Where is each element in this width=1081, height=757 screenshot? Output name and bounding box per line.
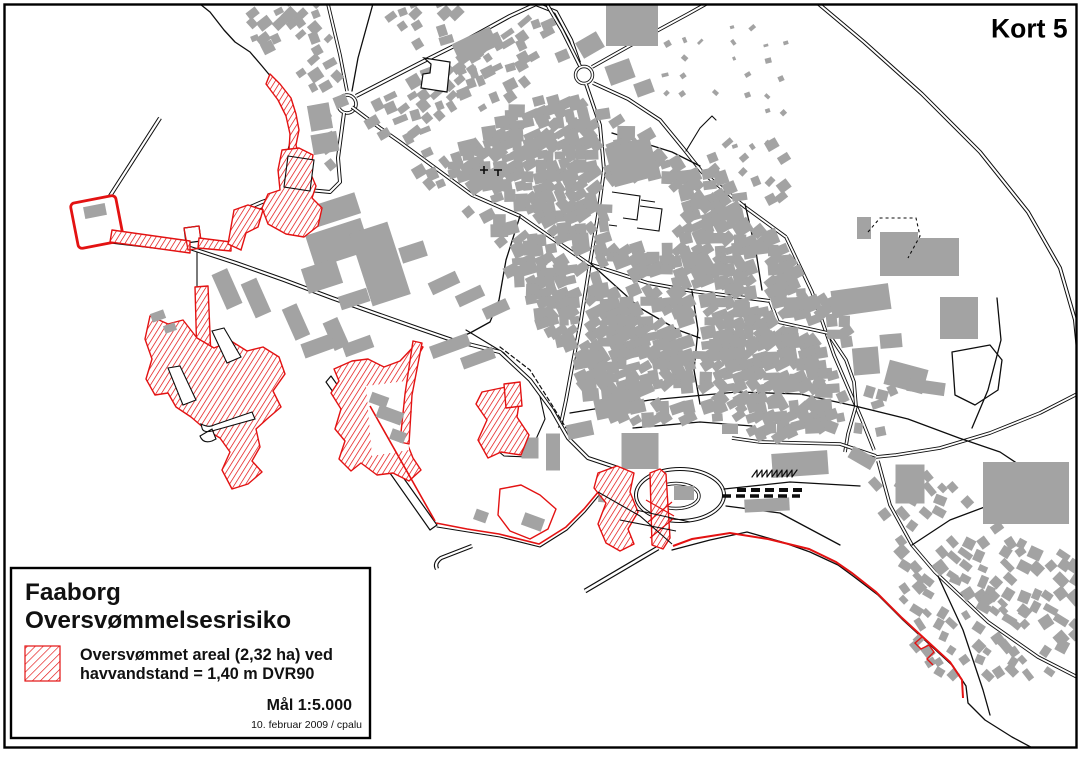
svg-text:Oversvømmelsesrisiko: Oversvømmelsesrisiko bbox=[25, 607, 291, 634]
svg-text:10. februar 2009 / cpalu: 10. februar 2009 / cpalu bbox=[251, 719, 362, 731]
svg-text:havvandstand = 1,40 m DVR90: havvandstand = 1,40 m DVR90 bbox=[80, 665, 314, 683]
svg-text:Oversvømmet areal (2,32 ha) ve: Oversvømmet areal (2,32 ha) ved bbox=[80, 646, 333, 664]
svg-text:Kort 5: Kort 5 bbox=[991, 14, 1068, 44]
svg-text:Mål 1:5.000: Mål 1:5.000 bbox=[267, 696, 352, 714]
svg-text:Faaborg: Faaborg bbox=[25, 579, 121, 606]
